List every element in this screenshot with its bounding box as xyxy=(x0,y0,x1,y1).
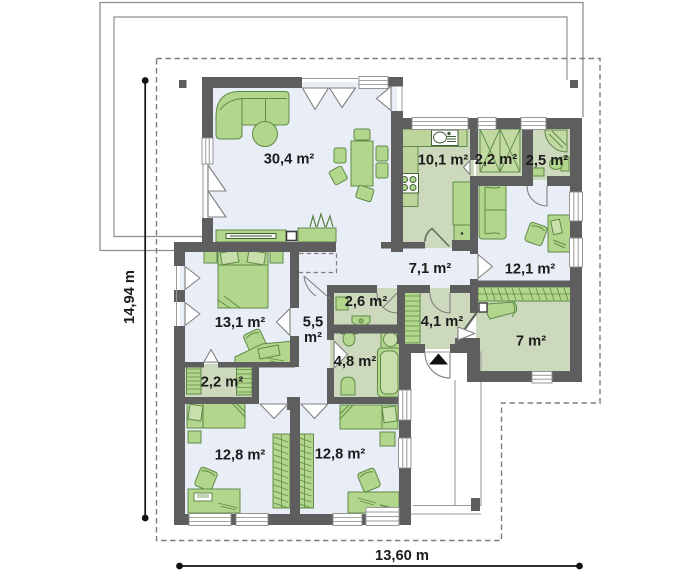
svg-text:4,8 m²: 4,8 m² xyxy=(334,354,377,370)
svg-text:2,5 m²: 2,5 m² xyxy=(526,153,569,169)
svg-text:30,4 m²: 30,4 m² xyxy=(264,152,315,168)
svg-text:13,60 m: 13,60 m xyxy=(375,548,429,564)
svg-text:4,1 m²: 4,1 m² xyxy=(421,314,464,330)
svg-text:7,1 m²: 7,1 m² xyxy=(409,261,452,277)
svg-text:14,94 m: 14,94 m xyxy=(122,270,138,324)
svg-text:5,5: 5,5 xyxy=(303,315,323,331)
svg-text:7 m²: 7 m² xyxy=(516,334,546,350)
svg-text:2,2 m²: 2,2 m² xyxy=(201,375,244,391)
svg-text:2,6 m²: 2,6 m² xyxy=(345,294,388,310)
svg-text:10,1 m²: 10,1 m² xyxy=(418,153,469,169)
svg-text:m²: m² xyxy=(304,330,322,346)
svg-text:12,8 m²: 12,8 m² xyxy=(315,447,366,463)
svg-text:12,8 m²: 12,8 m² xyxy=(215,448,266,464)
svg-text:2,2 m²: 2,2 m² xyxy=(475,152,518,168)
svg-text:12,1 m²: 12,1 m² xyxy=(505,262,556,278)
svg-text:13,1 m²: 13,1 m² xyxy=(215,315,266,331)
